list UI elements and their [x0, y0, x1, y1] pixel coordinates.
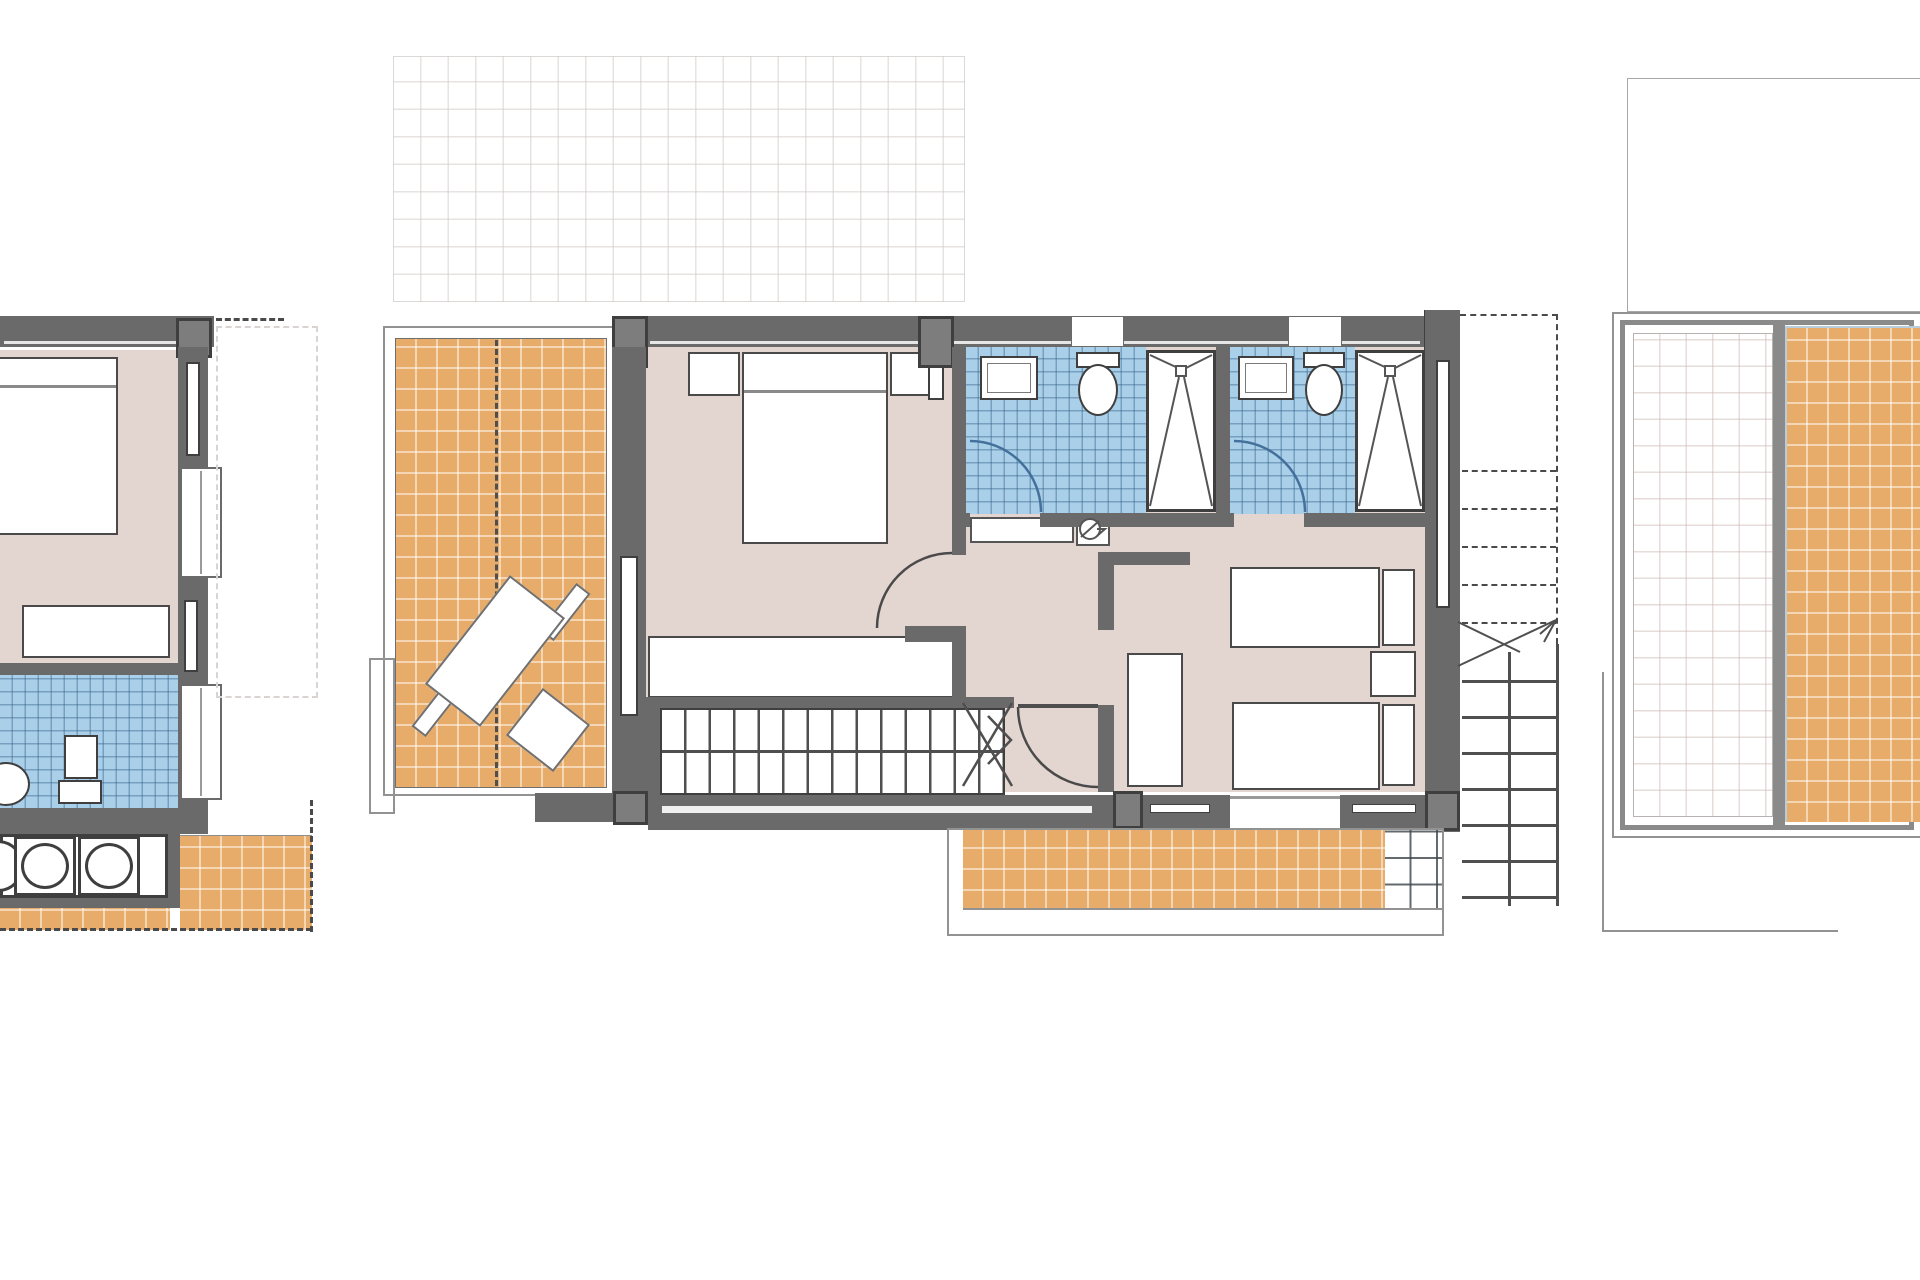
master-door-arc — [877, 553, 952, 628]
shower-1-drain-lines — [1150, 355, 1212, 506]
floor-plan-canvas — [0, 0, 1920, 1280]
shower-2-drain-lines — [1359, 355, 1421, 506]
bathroom-1-door-arc — [970, 441, 1041, 512]
ext-stair-break-lines — [1458, 620, 1556, 666]
water-heater-icon — [1080, 519, 1105, 539]
bathroom-2-door-arc — [1234, 441, 1305, 512]
stair-direction-chevron — [963, 703, 1012, 786]
annotations-overlay — [0, 0, 1920, 1280]
bedroom2-door-arc — [1018, 707, 1098, 787]
